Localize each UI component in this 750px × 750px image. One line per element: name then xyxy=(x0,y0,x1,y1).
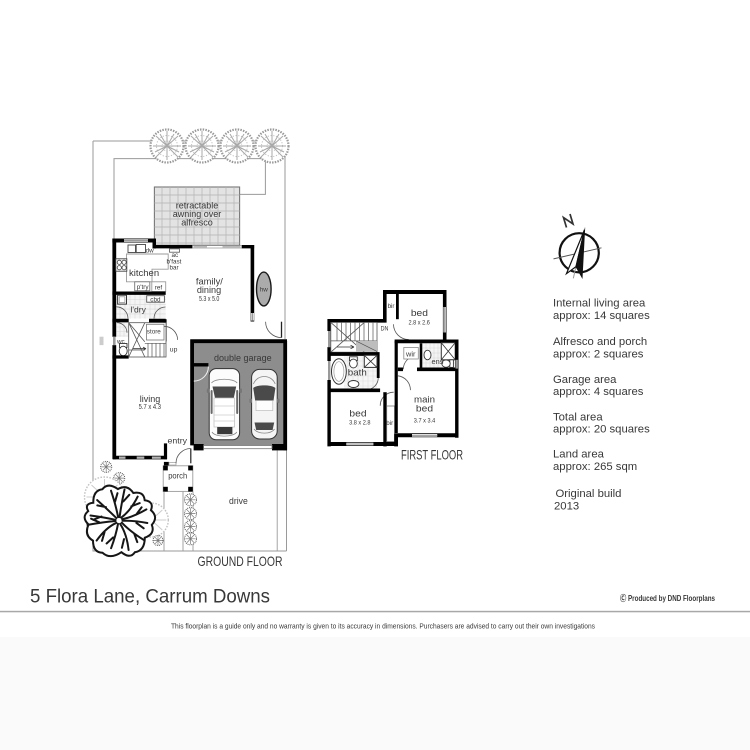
svg-text:2013: 2013 xyxy=(554,501,579,513)
svg-text:approx: 14 squares: approx: 14 squares xyxy=(553,310,650,322)
svg-text:l'dry: l'dry xyxy=(131,305,147,315)
svg-text:bath: bath xyxy=(348,368,367,379)
svg-text:ref: ref xyxy=(155,285,163,292)
svg-text:bir: bir xyxy=(386,420,393,427)
svg-text:Land area: Land area xyxy=(553,449,605,461)
svg-text:Alfresco and porch: Alfresco and porch xyxy=(553,336,647,348)
svg-text:kitchen: kitchen xyxy=(129,268,159,279)
svg-text:dining: dining xyxy=(197,285,221,296)
svg-text:p'try: p'try xyxy=(137,284,150,291)
svg-text:ens: ens xyxy=(432,357,444,366)
svg-text:bar: bar xyxy=(170,265,179,272)
svg-text:5.3 x 5.0: 5.3 x 5.0 xyxy=(199,296,219,303)
svg-text:cbd: cbd xyxy=(150,296,161,303)
svg-text:bed: bed xyxy=(349,408,366,418)
svg-text:GROUND FLOOR: GROUND FLOOR xyxy=(198,554,283,569)
svg-text:Garage area: Garage area xyxy=(553,374,617,386)
svg-text:bir: bir xyxy=(388,303,395,310)
svg-text:Internal living area: Internal living area xyxy=(553,298,646,310)
svg-text:approx: 20 squares: approx: 20 squares xyxy=(553,424,650,436)
svg-text:up: up xyxy=(170,346,178,353)
svg-text:3.7 x 3.4: 3.7 x 3.4 xyxy=(414,417,436,424)
svg-text:This floorplan is a guide only: This floorplan is a guide only and no wa… xyxy=(171,622,595,631)
svg-text:FIRST FLOOR: FIRST FLOOR xyxy=(401,448,463,463)
svg-text:hw: hw xyxy=(260,287,269,294)
svg-text:alfresco: alfresco xyxy=(181,218,213,228)
svg-text:approx: 2 squares: approx: 2 squares xyxy=(553,349,644,361)
svg-text:2.8 x 2.6: 2.8 x 2.6 xyxy=(409,320,431,327)
svg-text:5 Flora Lane, Carrum Downs: 5 Flora Lane, Carrum Downs xyxy=(30,587,270,608)
svg-text:wc: wc xyxy=(116,338,125,345)
svg-text:5.7 x 4.3: 5.7 x 4.3 xyxy=(139,404,161,411)
svg-text:Original build: Original build xyxy=(556,488,622,500)
svg-text:bed: bed xyxy=(416,404,433,414)
svg-text:bed: bed xyxy=(411,308,428,318)
svg-text:wir: wir xyxy=(405,350,416,359)
svg-text:Ⓒ Produced by DND Floorplans: Ⓒ Produced by DND Floorplans xyxy=(620,593,715,603)
svg-text:store: store xyxy=(147,328,161,335)
svg-text:porch: porch xyxy=(168,471,187,481)
svg-text:approx: 265 sqm: approx: 265 sqm xyxy=(553,461,637,473)
svg-text:entry: entry xyxy=(168,436,188,446)
svg-text:DN: DN xyxy=(381,326,389,332)
svg-text:double garage: double garage xyxy=(214,353,272,363)
svg-text:approx: 4 squares: approx: 4 squares xyxy=(553,386,644,398)
svg-text:3.8 x 2.8: 3.8 x 2.8 xyxy=(349,419,371,426)
svg-text:Total area: Total area xyxy=(553,412,603,424)
svg-text:drive: drive xyxy=(229,496,248,506)
